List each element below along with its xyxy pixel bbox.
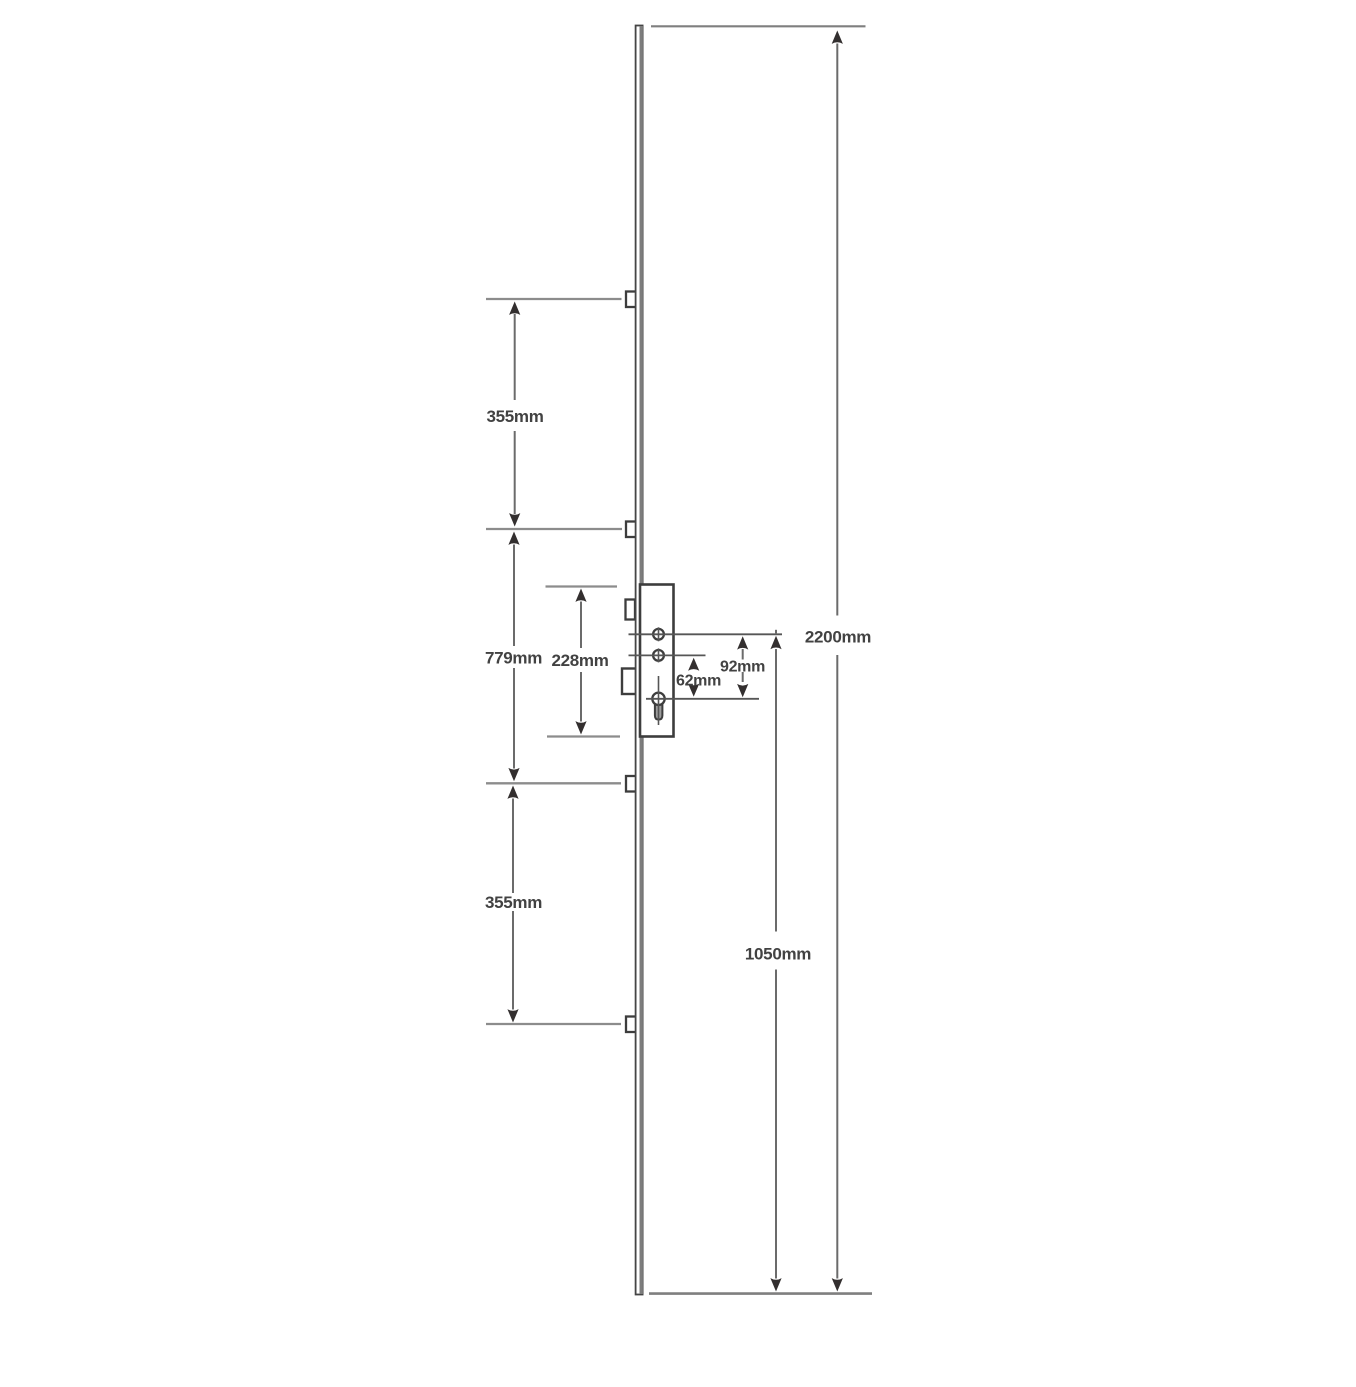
svg-text:2200mm: 2200mm	[805, 628, 871, 647]
svg-text:779mm: 779mm	[485, 649, 542, 668]
svg-text:355mm: 355mm	[485, 893, 542, 912]
svg-text:1050mm: 1050mm	[745, 945, 811, 964]
svg-text:355mm: 355mm	[486, 407, 543, 426]
svg-text:62mm: 62mm	[676, 673, 721, 690]
svg-text:228mm: 228mm	[551, 651, 608, 670]
svg-text:92mm: 92mm	[720, 659, 765, 676]
